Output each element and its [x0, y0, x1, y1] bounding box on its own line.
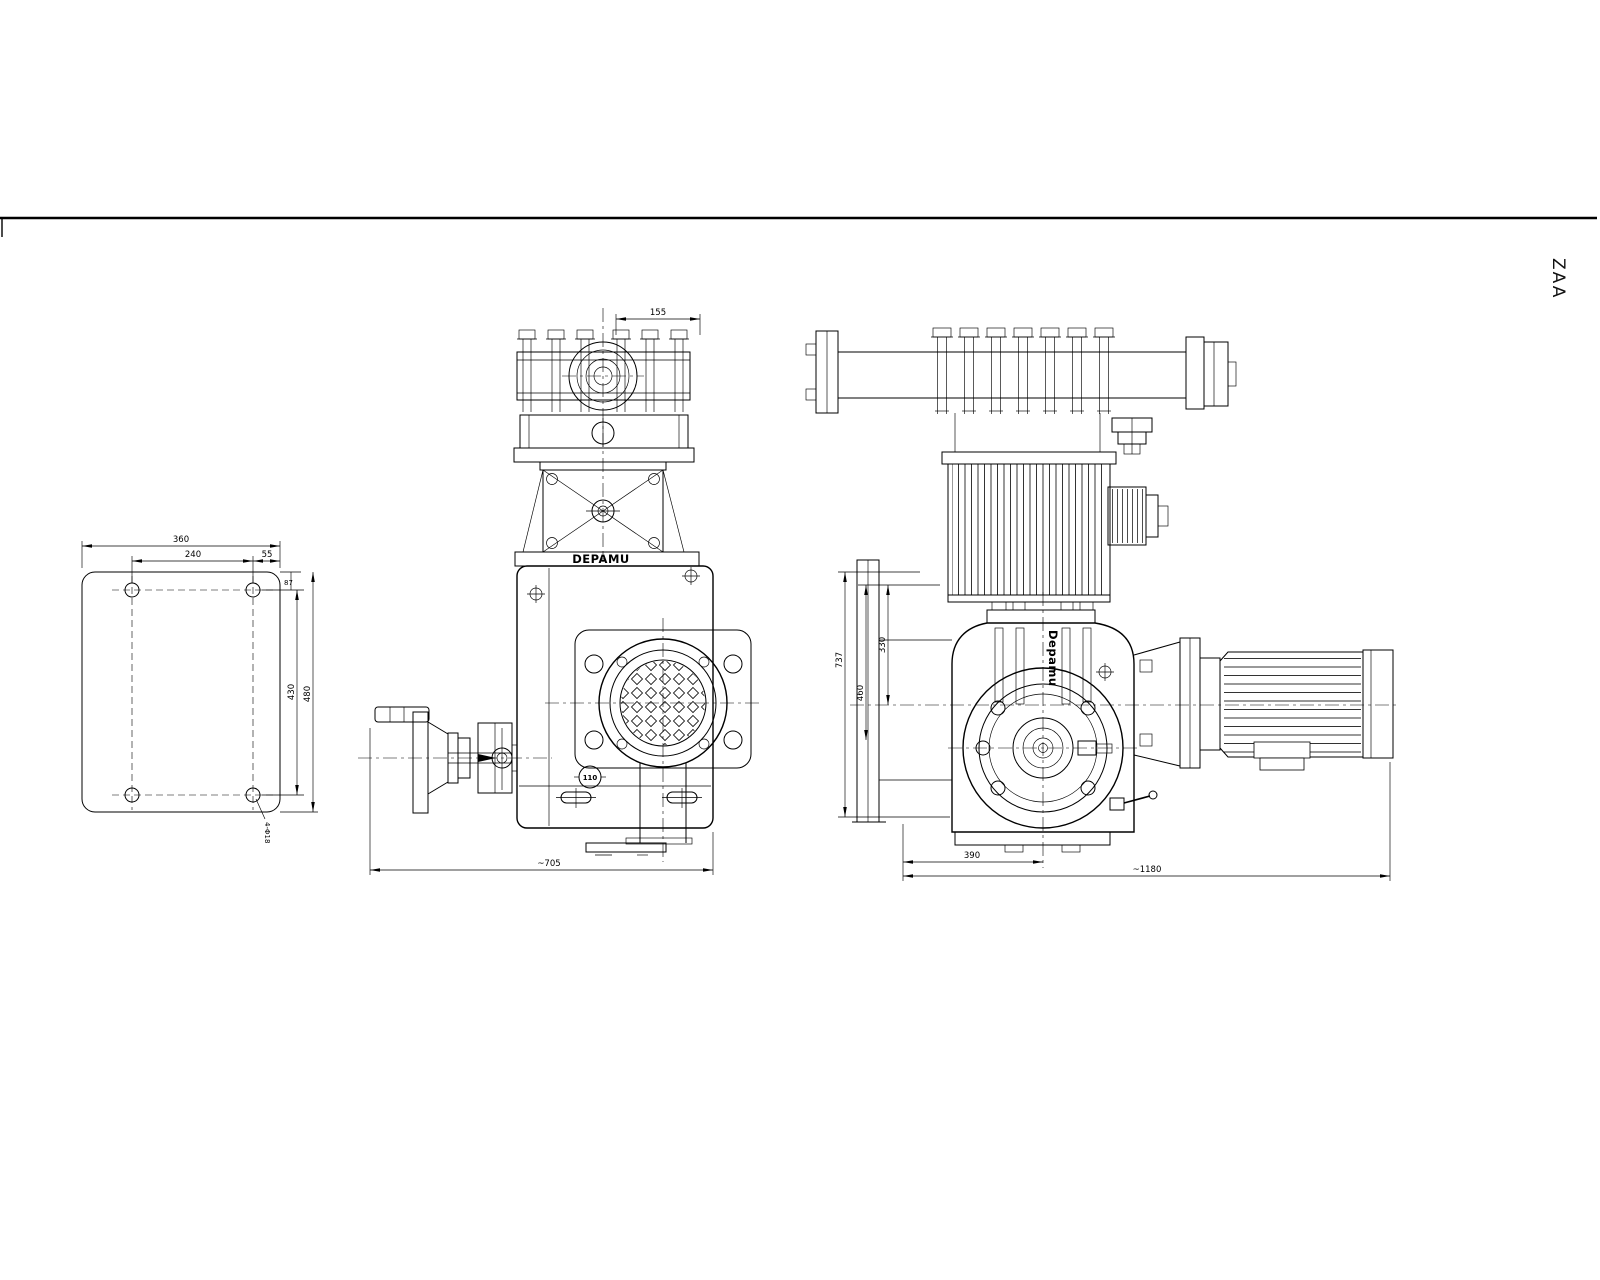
- svg-text:460: 460: [856, 685, 866, 701]
- sheet-border: [0, 218, 1597, 237]
- pump-front-view: 155 DEPAMU: [358, 308, 762, 875]
- svg-text:430: 430: [287, 684, 297, 700]
- handwheel: [358, 707, 552, 813]
- dim-base-height: 480: [280, 572, 318, 812]
- svg-text:390: 390: [964, 851, 980, 861]
- dim-base-hole-span-x: 240: [132, 550, 253, 583]
- base-plate-view: 360 240 55 87 430 480: [82, 535, 318, 843]
- svg-text:155: 155: [650, 308, 666, 318]
- dim-side-overall-length: ~1180: [903, 762, 1390, 881]
- dim-base-width: 360: [82, 535, 280, 568]
- drawing-sheet: ZAA 360 240 55: [0, 0, 1600, 1280]
- svg-text:55: 55: [262, 550, 273, 560]
- dim-base-edge-y: 87: [262, 572, 304, 590]
- svg-text:737: 737: [835, 652, 845, 668]
- svg-text:87: 87: [284, 579, 293, 587]
- dim-side-mid-height: 460: [856, 585, 940, 740]
- svg-text:~1180: ~1180: [1133, 865, 1162, 875]
- cad-canvas: ZAA 360 240 55: [0, 0, 1600, 1280]
- svg-text:360: 360: [173, 535, 189, 545]
- dim-base-hole-span-y: 430: [262, 590, 304, 795]
- pump-side-view: Depamu: [806, 328, 1400, 881]
- svg-text:110: 110: [583, 774, 598, 782]
- sight-glass: 110: [574, 766, 606, 788]
- zone-label: ZAA: [1548, 258, 1568, 299]
- svg-text:4-Φ18: 4-Φ18: [263, 822, 271, 843]
- brand-front: DEPAMU: [572, 552, 629, 566]
- brand-side: Depamu: [1046, 630, 1060, 687]
- svg-text:240: 240: [185, 550, 201, 560]
- leader-base-holes: 4-Φ18: [256, 799, 271, 843]
- svg-text:330: 330: [878, 637, 888, 653]
- dim-base-edge-x: 55: [253, 550, 280, 561]
- svg-text:480: 480: [303, 686, 313, 702]
- svg-text:~705: ~705: [537, 859, 560, 869]
- dim-front-overall-width: ~705: [370, 728, 713, 875]
